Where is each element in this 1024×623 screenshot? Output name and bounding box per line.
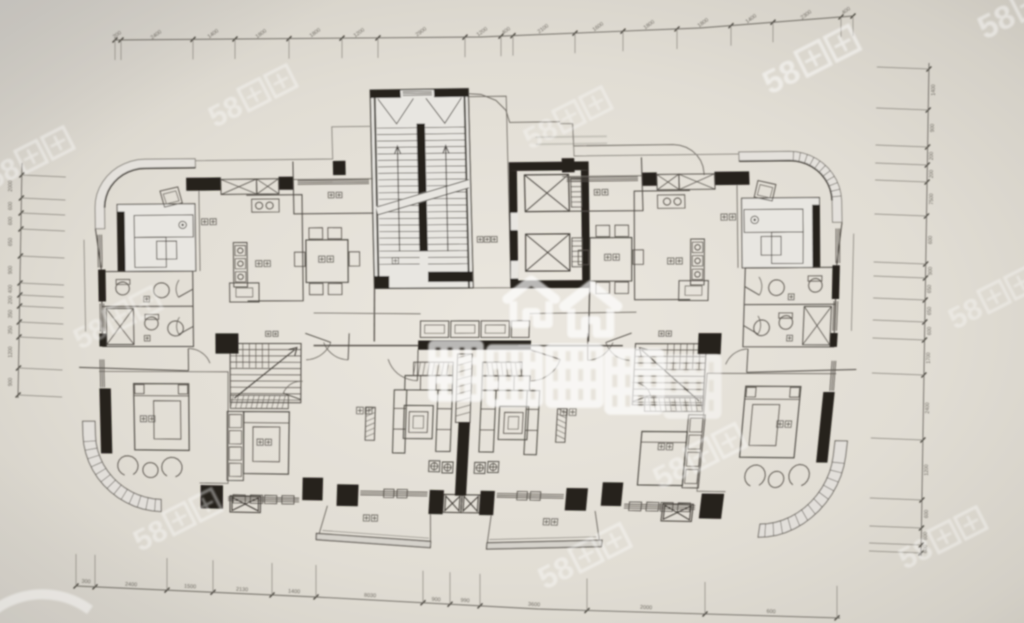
svg-text:400: 400	[8, 285, 14, 294]
svg-text:650: 650	[8, 238, 14, 247]
svg-text:200: 200	[929, 170, 935, 179]
svg-text:900: 900	[8, 378, 14, 387]
svg-text:1700: 1700	[926, 352, 932, 363]
svg-text:600: 600	[928, 236, 934, 245]
svg-text:1500: 1500	[184, 584, 196, 591]
svg-text:1200: 1200	[924, 464, 930, 475]
svg-text:2000: 2000	[640, 605, 652, 612]
svg-text:600: 600	[8, 217, 14, 226]
svg-text:200: 200	[8, 296, 14, 305]
svg-text:2130: 2130	[236, 587, 248, 594]
svg-text:1400: 1400	[288, 589, 300, 596]
svg-text:990: 990	[460, 598, 469, 604]
svg-text:8030: 8030	[364, 593, 376, 600]
svg-text:900: 900	[8, 266, 14, 275]
svg-text:1200: 1200	[8, 346, 14, 357]
svg-text:900: 900	[928, 267, 934, 276]
svg-text:3600: 3600	[528, 602, 540, 609]
svg-text:1400: 1400	[931, 84, 937, 95]
svg-text:650: 650	[927, 307, 933, 316]
svg-text:600: 600	[766, 609, 775, 615]
svg-text:600: 600	[927, 327, 933, 336]
svg-text:600: 600	[924, 510, 930, 519]
svg-text:200: 200	[929, 152, 935, 161]
svg-text:2400: 2400	[125, 582, 137, 589]
svg-text:300: 300	[81, 579, 90, 585]
svg-text:650: 650	[927, 285, 933, 294]
svg-text:350: 350	[8, 326, 14, 335]
svg-text:900: 900	[930, 124, 936, 133]
svg-text:7500: 7500	[929, 193, 935, 204]
svg-text:350: 350	[8, 310, 14, 319]
svg-text:600: 600	[8, 202, 14, 211]
svg-text:2400: 2400	[925, 402, 931, 413]
svg-text:900: 900	[431, 597, 440, 603]
